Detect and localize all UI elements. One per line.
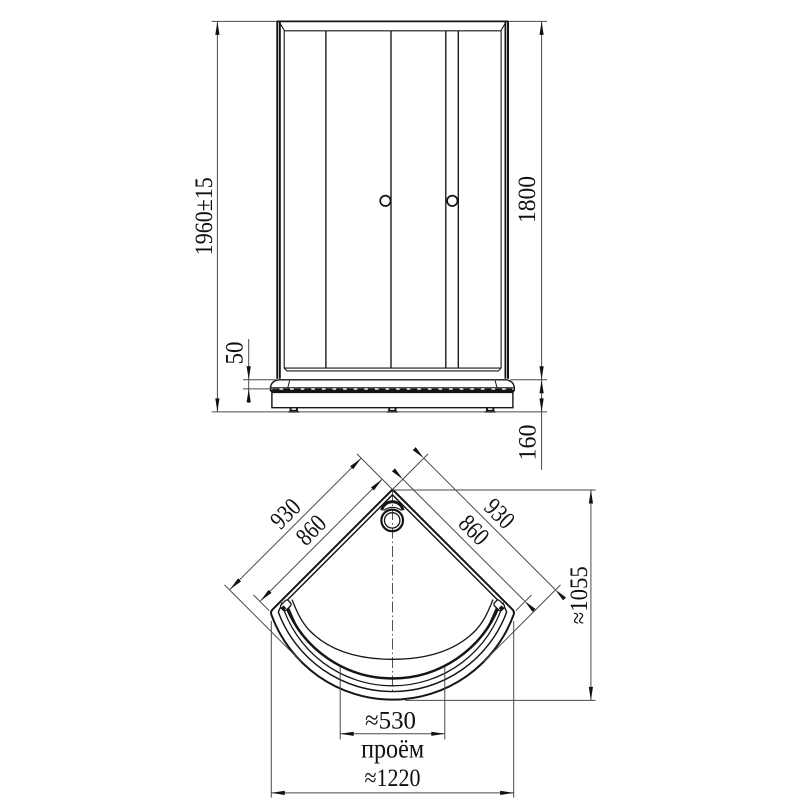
svg-text:50: 50 [219,342,248,365]
svg-text:≈1055: ≈1055 [564,566,593,624]
svg-text:160: 160 [513,425,542,461]
svg-text:1960±15: 1960±15 [189,177,218,255]
svg-text:≈1220: ≈1220 [365,763,421,792]
svg-text:проём: проём [361,734,424,764]
svg-text:1800: 1800 [512,176,541,223]
svg-text:≈530: ≈530 [365,705,416,734]
